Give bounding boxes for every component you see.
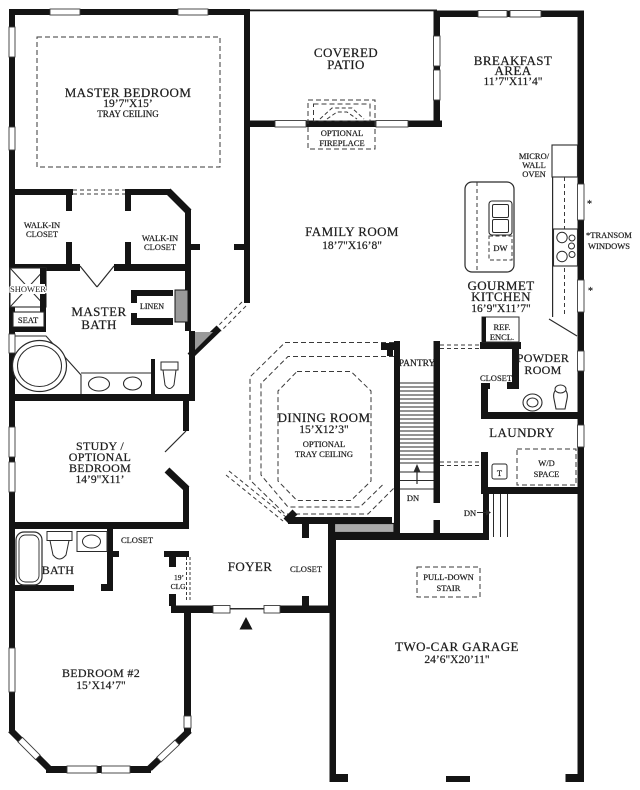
svg-text:CLOSET: CLOSET bbox=[144, 242, 177, 252]
svg-text:SPACE: SPACE bbox=[534, 469, 560, 479]
svg-text:LAUNDRY: LAUNDRY bbox=[489, 425, 555, 440]
svg-text:REF.: REF. bbox=[493, 322, 510, 332]
svg-text:BATH: BATH bbox=[42, 563, 75, 577]
svg-text:19’: 19’ bbox=[174, 573, 184, 582]
svg-text:*: * bbox=[588, 286, 593, 297]
svg-text:OPTIONAL: OPTIONAL bbox=[303, 439, 346, 449]
svg-text:OVEN: OVEN bbox=[522, 169, 546, 179]
svg-text:SHOWER: SHOWER bbox=[10, 284, 46, 294]
svg-text:KITCHEN: KITCHEN bbox=[471, 289, 531, 304]
svg-text:ROOM: ROOM bbox=[524, 363, 561, 377]
svg-text:CLOSET: CLOSET bbox=[480, 373, 513, 383]
svg-text:*: * bbox=[587, 199, 592, 210]
svg-text:14’9"X11’: 14’9"X11’ bbox=[76, 474, 125, 486]
svg-text:DW: DW bbox=[493, 243, 507, 253]
svg-text:TRAY CEILING: TRAY CEILING bbox=[295, 449, 353, 459]
svg-text:STAIR: STAIR bbox=[437, 583, 461, 593]
svg-text:DN: DN bbox=[464, 508, 476, 518]
svg-text:FOYER: FOYER bbox=[228, 559, 273, 574]
svg-text:15’X14’7": 15’X14’7" bbox=[76, 680, 125, 692]
svg-text:ENCL.: ENCL. bbox=[490, 332, 514, 342]
svg-text:11’7"X11’4": 11’7"X11’4" bbox=[484, 76, 543, 88]
svg-text:*TRANSOM: *TRANSOM bbox=[586, 230, 632, 240]
svg-text:18’7"X16’8": 18’7"X16’8" bbox=[322, 240, 382, 252]
svg-text:CLOSET: CLOSET bbox=[290, 564, 323, 574]
svg-text:15’X12’3": 15’X12’3" bbox=[299, 424, 348, 436]
svg-text:W/D: W/D bbox=[538, 458, 555, 468]
svg-text:16’9"X11’7": 16’9"X11’7" bbox=[471, 303, 530, 315]
svg-text:PATIO: PATIO bbox=[327, 57, 365, 72]
svg-text:TRAY CEILING: TRAY CEILING bbox=[97, 109, 159, 119]
svg-text:LINEN: LINEN bbox=[140, 302, 164, 311]
svg-text:TWO-CAR GARAGE: TWO-CAR GARAGE bbox=[395, 639, 519, 654]
svg-text:WINDOWS: WINDOWS bbox=[588, 241, 630, 251]
svg-text:OPTIONAL: OPTIONAL bbox=[321, 128, 364, 138]
svg-text:SEAT: SEAT bbox=[18, 315, 39, 325]
svg-text:FAMILY ROOM: FAMILY ROOM bbox=[305, 224, 399, 239]
svg-text:PULL-DOWN: PULL-DOWN bbox=[423, 572, 474, 582]
svg-text:CLOSET: CLOSET bbox=[26, 229, 59, 239]
svg-text:BEDROOM #2: BEDROOM #2 bbox=[62, 666, 140, 680]
svg-text:BATH: BATH bbox=[81, 317, 117, 332]
svg-text:DN: DN bbox=[407, 493, 419, 503]
svg-text:T: T bbox=[497, 468, 503, 478]
svg-text:CLOSET: CLOSET bbox=[121, 535, 154, 545]
svg-text:PANTRY: PANTRY bbox=[399, 359, 436, 369]
svg-text:DINING ROOM: DINING ROOM bbox=[278, 410, 371, 425]
svg-text:24’6"X20’11": 24’6"X20’11" bbox=[424, 654, 489, 666]
svg-text:CLG.: CLG. bbox=[171, 582, 188, 591]
svg-text:FIREPLACE: FIREPLACE bbox=[319, 138, 364, 148]
svg-text:BEDROOM: BEDROOM bbox=[69, 461, 131, 475]
